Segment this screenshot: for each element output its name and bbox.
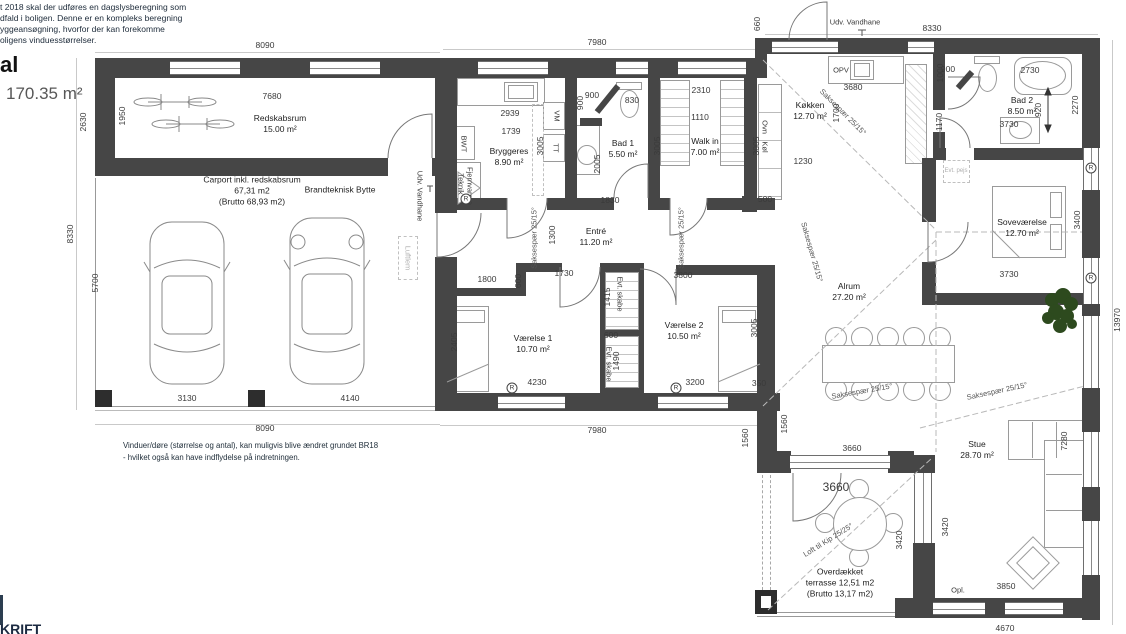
room-label-entre: Entré 11.20 m² — [580, 226, 613, 248]
car-icon — [284, 218, 370, 384]
pillow — [1050, 192, 1062, 218]
room-name: Overdækket — [806, 566, 875, 577]
room-label-bad1: Bad 1 5.50 m² — [609, 138, 638, 160]
wall — [895, 598, 1100, 618]
door-arc — [614, 164, 648, 198]
room-label-sovevaerelse: Soveværelse 12.70 m² — [997, 217, 1047, 239]
window — [498, 396, 565, 409]
carport-edge — [95, 406, 440, 407]
label-opv: OPV — [833, 66, 849, 75]
page-title-fragment: al — [0, 52, 18, 78]
dim-3850: 3850 — [997, 581, 1016, 591]
dim-3420-stue: 3420 — [940, 518, 950, 537]
wall — [922, 293, 1084, 305]
room-name: Entré — [580, 226, 613, 237]
carport-post — [248, 390, 265, 407]
wall — [448, 288, 518, 296]
window — [933, 602, 985, 615]
door-arc — [928, 222, 968, 262]
window — [1083, 432, 1099, 487]
terrasse-chair — [815, 513, 835, 533]
dim-2630: 2630 — [78, 113, 88, 132]
wall — [1082, 388, 1100, 432]
dim-3130: 3130 — [178, 393, 197, 403]
room-name: Værelse 1 — [514, 333, 553, 344]
dim-line — [765, 34, 1098, 35]
dim-1230: 1230 — [794, 156, 813, 166]
room-name: Køkken — [793, 100, 827, 111]
room-label-terrasse: Overdækket terrasse 12,51 m2 (Brutto 13,… — [806, 566, 875, 599]
wall — [913, 543, 935, 600]
wall — [922, 158, 936, 222]
window — [478, 61, 548, 75]
room-label-walkin: Walk in 7.00 m² — [691, 136, 720, 158]
pillow — [1050, 224, 1062, 250]
room-area: 5.50 m² — [609, 149, 638, 160]
room-name: Carport inkl. redskabsrum — [203, 174, 300, 185]
room-name: Alrum — [832, 281, 866, 292]
r-window-mark: R — [671, 383, 682, 394]
dim-left-8330: 8330 — [65, 225, 75, 244]
sofa-cushion-line — [1046, 510, 1082, 511]
room-name: Bad 1 — [609, 138, 638, 149]
terrasse-edge-line — [757, 612, 913, 613]
toilet-icon — [978, 64, 997, 92]
dim-line — [443, 49, 759, 50]
label-saksespaer: Saksespær 25/15° — [530, 207, 539, 269]
label-bwt: BWT — [460, 136, 469, 153]
room-label-redskabsrum: Redskabsrum 15.00 m² — [254, 113, 306, 135]
dim-600: 600 — [604, 330, 618, 340]
dim-4230: 4230 — [528, 377, 547, 387]
window — [772, 41, 838, 53]
dim-13970: 13970 — [1112, 308, 1122, 332]
wall — [1082, 487, 1100, 521]
window — [658, 396, 728, 409]
room-area: 15.00 m² — [254, 124, 306, 135]
wall — [757, 265, 775, 393]
wall — [777, 451, 791, 473]
window — [678, 61, 746, 75]
toilet-tank — [974, 56, 1000, 64]
dim-900: 900 — [585, 90, 599, 100]
terrasse-post-core — [761, 596, 771, 608]
room-label-koekken: Køkken 12.70 m² — [793, 100, 827, 122]
dim-3660-top: 3660 — [843, 443, 862, 453]
dim-2270: 2270 — [1070, 96, 1080, 115]
dim-line — [95, 52, 440, 53]
header-note-line2: dfald i boligen. Denne er en kompleks be… — [0, 13, 182, 23]
wall — [600, 388, 644, 396]
sofa-cushion-line — [1056, 422, 1057, 458]
dim-line — [76, 58, 77, 410]
label-saksespaer: Saksespær 25/15° — [799, 221, 825, 283]
room-area: 7.00 m² — [691, 147, 720, 158]
room-label-bryggers: Bryggeres 8.90 m² — [490, 146, 529, 168]
bicycle-icon — [134, 94, 234, 132]
label-udv-vandhane-left: Udv. Vandhane — [416, 171, 425, 222]
terrasse-edge-line — [757, 616, 913, 617]
dim-1300: 1300 — [547, 226, 557, 245]
wall — [757, 411, 777, 473]
dim-2939: 2939 — [501, 108, 520, 118]
room-area: 10.50 m² — [665, 331, 704, 342]
sofa — [1044, 440, 1084, 548]
dim-3730-sove: 3730 — [1000, 269, 1019, 279]
footer-note-line1: Vinduer/døre (størrelse og antal), kan m… — [123, 441, 378, 450]
room-area: 27.20 m² — [832, 292, 866, 303]
wall — [1082, 190, 1100, 258]
dim-2005: 2005 — [592, 155, 602, 174]
dim-3680: 3680 — [844, 82, 863, 92]
floor-plan: t 2018 skal der udføres en dagslysberegn… — [0, 0, 1126, 634]
dim-1000: 1000 — [935, 64, 945, 83]
r-window-mark: R — [1086, 163, 1097, 174]
dim-1730: 1730 — [555, 268, 574, 278]
r-mark-text: R — [1089, 275, 1094, 282]
room-area: 11.20 m² — [580, 237, 613, 248]
window — [310, 61, 380, 75]
wall — [1082, 304, 1100, 316]
dim-4670: 4670 — [996, 623, 1015, 633]
wall — [600, 263, 644, 272]
dim-3200: 3200 — [686, 377, 705, 387]
r-mark-text: R — [510, 385, 515, 392]
room-name: Værelse 2 — [665, 320, 704, 331]
header-note-line4: oligens vinduesstørrelser. — [0, 35, 96, 45]
sofa-cushion-line — [1046, 474, 1082, 475]
kitchen-cabinet — [905, 64, 927, 164]
room-label-vaerelse2: Værelse 2 10.50 m² — [665, 320, 704, 342]
label-opl: Opl. — [951, 586, 965, 595]
dim-4140: 4140 — [341, 393, 360, 403]
dim-3005-vaer2: 3005 — [749, 319, 759, 338]
label-saksespaer: Saksespær 25/15° — [677, 207, 686, 269]
room-area: 67,31 m2 — [203, 185, 300, 196]
dim-3730-bad2: 3730 — [1000, 119, 1019, 129]
wall — [435, 78, 457, 213]
dim-3420-terr: 3420 — [894, 531, 904, 550]
room-area: 10.70 m² — [514, 344, 553, 355]
room-area: (Brutto 68,93 m2) — [203, 197, 300, 208]
dim-5700: 5700 — [90, 274, 100, 293]
dim-1800: 1800 — [478, 274, 497, 284]
label-text: Brandteknisk Bytte — [305, 184, 376, 195]
dim-1490: 1490 — [611, 352, 621, 371]
wall — [938, 148, 946, 160]
wall — [742, 196, 757, 212]
dim-3800: 3800 — [674, 270, 693, 280]
terrasse-open-edge — [770, 475, 771, 590]
dim-1415: 1415 — [602, 288, 612, 307]
dim-1700: 1700 — [831, 104, 841, 123]
total-area-value: 170.35 m² — [6, 84, 83, 104]
door-arc — [437, 213, 481, 257]
window — [170, 61, 240, 75]
door-arc — [388, 114, 432, 158]
dim-top-8330: 8330 — [923, 23, 942, 33]
dim-bottom-7980: 7980 — [588, 425, 607, 435]
window — [1083, 521, 1099, 575]
room-name: Bryggeres — [490, 146, 529, 157]
dim-2405: 2405 — [449, 333, 459, 352]
room-area: 12.70 m² — [793, 111, 827, 122]
dim-1560b: 1560 — [779, 415, 789, 434]
dim-3005-bryggers: 3005 — [535, 137, 545, 156]
room-label-carport: Carport inkl. redskabsrum 67,31 m2 (Brut… — [203, 174, 300, 207]
wall — [1082, 38, 1100, 148]
carport-edge — [95, 410, 440, 411]
label-evt-pejs: Evt. pejs — [944, 168, 967, 174]
bryggers-sink-basin — [508, 85, 534, 99]
walkin-wardrobe — [660, 80, 690, 166]
dim-1560: 1560 — [740, 429, 750, 448]
r-mark-text: R — [464, 196, 469, 203]
wall — [974, 148, 1084, 160]
window — [1083, 316, 1099, 388]
window — [908, 41, 934, 53]
footer-note-line2: - hvilket også kan have indflydelse på i… — [123, 453, 300, 462]
room-name: Walk in — [691, 136, 720, 147]
r-window-mark: R — [507, 383, 518, 394]
dim-top-7980: 7980 — [588, 37, 607, 47]
dim-3660-big: 3660 — [823, 480, 850, 494]
dim-3400: 3400 — [1072, 211, 1082, 230]
dim-3005-walkin-r: 3005 — [751, 137, 761, 156]
window — [616, 61, 648, 75]
terrasse-chair — [849, 479, 869, 499]
label-teknik: Teknik — [457, 173, 466, 194]
label-tt: TT — [552, 143, 561, 152]
dim-900v: 900 — [575, 96, 585, 110]
dim-920: 920 — [1033, 103, 1043, 117]
dim-bottom-8090: 8090 — [256, 423, 275, 433]
r-mark-text: R — [674, 385, 679, 392]
room-area: 8.90 m² — [490, 157, 529, 168]
door-arc — [640, 269, 676, 305]
window — [790, 455, 890, 469]
wall — [888, 451, 914, 473]
wall — [913, 455, 935, 473]
room-area: terrasse 12,51 m2 — [806, 577, 875, 588]
dim-500: 500 — [758, 194, 772, 204]
label-brandteknisk: Brandteknisk Bytte — [305, 184, 376, 195]
dim-1170: 1170 — [934, 113, 944, 131]
dim-660: 660 — [752, 17, 762, 31]
header-note-line3: yggeansøgning, hvorfor der kan forekomme — [0, 24, 165, 34]
dim-600v: 600 — [513, 274, 523, 288]
dim-1950: 1950 — [117, 107, 127, 126]
carport-post — [95, 390, 112, 407]
dim-7280: 7280 — [1059, 432, 1069, 451]
dim-2310: 2310 — [692, 85, 711, 95]
wall — [95, 158, 388, 176]
dim-1110: 1110 — [691, 112, 709, 122]
dim-top-8090: 8090 — [256, 40, 275, 50]
wall — [95, 58, 440, 78]
logo-fragment-text: KRIFT — [0, 621, 41, 634]
label-ovn: Ovn — [761, 120, 770, 134]
room-name: Stue — [960, 439, 994, 450]
dim-830: 830 — [625, 95, 639, 105]
room-label-stue: Stue 28.70 m² — [960, 439, 994, 461]
wall — [648, 198, 670, 210]
car-icon — [144, 222, 230, 384]
kitchen-sink-basin — [854, 63, 870, 77]
dining-table — [822, 345, 955, 383]
window — [914, 473, 932, 543]
door-arc — [507, 198, 547, 238]
room-name: Redskabsrum — [254, 113, 306, 124]
sofa-cushion-line — [1032, 422, 1033, 458]
dim-2730: 2730 — [1021, 65, 1040, 75]
label-koel: Køl — [761, 141, 770, 152]
window — [1005, 602, 1063, 615]
dim-1830: 1830 — [601, 195, 620, 205]
r-mark-text: R — [1089, 165, 1094, 172]
label-udv-vandhane-top: Udv. Vandhane — [830, 18, 881, 27]
room-area: 12.70 m² — [997, 228, 1047, 239]
dim-350: 350 — [752, 378, 766, 388]
label-luftlem: Luftlem — [404, 246, 413, 271]
terrasse-open-edge — [762, 475, 763, 590]
dim-7680: 7680 — [263, 91, 282, 101]
room-label-vaerelse1: Værelse 1 10.70 m² — [514, 333, 553, 355]
label-vm: VM — [553, 110, 562, 121]
label-evt-skabe: Evt. skabe — [616, 276, 625, 311]
door-arc — [948, 77, 980, 109]
room-label-alrum: Alrum 27.20 m² — [832, 281, 866, 303]
dim-3005-walkin-l: 3005 — [652, 137, 662, 156]
r-window-mark: R — [461, 194, 472, 205]
plan-graphics — [0, 0, 1126, 634]
r-window-mark: R — [1086, 273, 1097, 284]
label-saksespaer: Saksespær 25/15° — [966, 380, 1028, 402]
header-note-line1: t 2018 skal der udføres en dagslysberegn… — [0, 2, 186, 12]
wall — [580, 118, 602, 126]
toilet-tank — [616, 82, 642, 90]
dim-line — [1112, 40, 1113, 625]
room-name: Soveværelse — [997, 217, 1047, 228]
terrasse-table — [833, 497, 887, 551]
room-area: (Brutto 13,17 m2) — [806, 589, 875, 600]
room-area: 28.70 m² — [960, 450, 994, 461]
dim-1739: 1739 — [502, 126, 521, 136]
